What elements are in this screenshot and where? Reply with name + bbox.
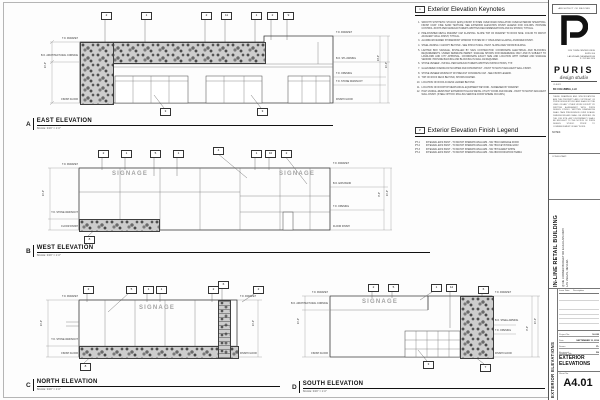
finish-text: INTEGRAL EIFS PAINT - TO MATCH SHERWIN W… xyxy=(426,145,546,147)
project-title: IN-LINE RETAIL BUILDING xyxy=(553,202,559,287)
keynote-item: 2. PRE-FINISHED METAL PARAPET CAP FLASHI… xyxy=(415,33,546,39)
elevation-letter: B xyxy=(26,248,31,255)
finish-legend-item: PT-4 INTEGRAL EIFS PAINT - TO MATCH SHER… xyxy=(415,152,546,154)
project-address-line1: @ NE CORNER BUDGET RD & HUALAPAI WAY xyxy=(562,202,565,287)
elevation-title-text: WEST ELEVATION xyxy=(37,245,430,253)
keynote-item: 12. HIGH VANDAL-RESISTANT EXTERIOR HOLLO… xyxy=(415,91,546,97)
keynote-item: 3. ALUMINUM FRAMED STOREFRONT WINDOW SYS… xyxy=(415,40,546,43)
finish-legend-item: PT-2 INTEGRAL EIFS PAINT - TO MATCH SHER… xyxy=(415,145,546,147)
sheet-side-title: EXTERIOR ELEVATIONS xyxy=(550,300,555,398)
finish-text: INTEGRAL EIFS PAINT - TO MATCH SHERWIN W… xyxy=(426,149,546,151)
elevation-title: D SOUTH ELEVATION SCALE: 3/16" = 1'-0" xyxy=(292,381,545,393)
elevation-title-text: NORTH ELEVATION xyxy=(37,379,280,387)
finish-text: INTEGRAL EIFS PAINT - TO MATCH SHERWIN W… xyxy=(426,142,546,144)
keynote-item: 10. LOCATION OF ROOF ACCESS LADDER BEYON… xyxy=(415,82,546,85)
keynote-item: 7. GALVANIZED OVERFLOW SCUPPER AND DOWNS… xyxy=(415,68,546,71)
keynote-number: 1. xyxy=(415,22,420,31)
keynote-text: PRE-FINISHED METAL PARAPET CAP FLASHING.… xyxy=(422,33,547,39)
keynotes-title: Exterior Elevation Keynotes xyxy=(428,6,505,13)
client-label: CLIENT: xyxy=(553,84,561,86)
architect-address: 1120 TOWN CENTER DRIVESUITE 200LAS VEGAS… xyxy=(553,50,595,61)
elevation-letter: A xyxy=(26,121,31,128)
design-studio-label: design studio xyxy=(551,75,597,82)
keynote-item: 1. SMOOTH SYNTHETIC STUCCO (EIFS) FINISH… xyxy=(415,22,546,31)
elevation-scale: SCALE: 3/16" = 1'-0" xyxy=(303,390,545,393)
keynote-number: 11. xyxy=(415,87,420,90)
keynote-text: SMOOTH SYNTHETIC STUCCO (EIFS) FINISH SY… xyxy=(422,22,547,31)
keynote-item: 8. STONE VENEER WAINSCOT W/ PRECAST CONC… xyxy=(415,73,546,76)
finish-code: PT-1 xyxy=(415,142,424,144)
drawing-sheet: SIGNAGESIGNAGESIGNAGESIGNAGE 21211129332… xyxy=(0,0,600,400)
keynote-text: LOCATION OF ROOF ACCESS LADDER BEYOND. xyxy=(422,82,547,85)
elevation-title: A EAST ELEVATION SCALE: 3/16" = 1'-0" xyxy=(26,118,333,130)
finish-legend-item: PT-1 INTEGRAL EIFS PAINT - TO MATCH SHER… xyxy=(415,142,546,144)
keynote-text: LOCATION OF ROOFTOP MECHANICAL EQUIPMENT… xyxy=(422,87,547,90)
keynote-text: STONE VENEER - INSTALL PER MANUFACTURER'… xyxy=(422,63,547,66)
keynote-text: LIGHTED BOX SIGNAGE, INSTALLED BY SIGN C… xyxy=(422,50,547,62)
puris-logo-icon xyxy=(560,15,588,47)
project-address-line2: LAS VEGAS, NEVADA xyxy=(566,202,569,287)
keynote-item: 9. TOP OF ROOF DECK BEYOND, SHOWN DASHED… xyxy=(415,77,546,80)
field-value: SEPTEMBER 13, 2016 xyxy=(576,340,599,342)
elevation-title-text: EAST ELEVATION xyxy=(37,118,333,126)
finish-tag-icon: P xyxy=(415,127,425,134)
keynote-item: 11. LOCATION OF ROOFTOP MECHANICAL EQUIP… xyxy=(415,87,546,90)
keynote-number: 2. xyxy=(415,33,420,39)
keynote-tag-icon: 1 xyxy=(415,6,425,13)
keynote-text: HIGH VANDAL-RESISTANT EXTERIOR HOLLOW ME… xyxy=(422,91,547,97)
finish-text: INTEGRAL EIFS PAINT - TO MATCH SHERWIN W… xyxy=(426,152,546,154)
finish-code: PT-4 xyxy=(415,152,424,154)
elevation-title: C NORTH ELEVATION SCALE: 3/16" = 1'-0" xyxy=(26,379,280,391)
elevation-scale: SCALE: 3/16" = 1'-0" xyxy=(37,388,280,391)
finish-legend-title: Exterior Elevation Finish Legend xyxy=(428,127,519,134)
puris-wordmark: PURIS xyxy=(551,65,597,75)
keynote-number: 6. xyxy=(415,63,420,66)
finish-code: PT-3 xyxy=(415,149,424,151)
drawing-title-value: EXTERIOR ELEVATIONS xyxy=(559,356,597,368)
finish-code: PT-2 xyxy=(415,145,424,147)
keynote-item: 5. LIGHTED BOX SIGNAGE, INSTALLED BY SIG… xyxy=(415,50,546,62)
keynote-item: 4. STEEL AWNING / CANOPY BEYOND - SEE ST… xyxy=(415,45,546,48)
title-block: ARCHITECT OF RECORD 1120 TOWN CENTER DRI… xyxy=(548,0,600,400)
finish-legend-item: PT-3 INTEGRAL EIFS PAINT - TO MATCH SHER… xyxy=(415,149,546,151)
revision-table-rows xyxy=(559,296,599,330)
description-column-label: Description xyxy=(573,290,584,292)
address-line: P: 702.360.1120 xyxy=(553,58,595,61)
field-value: PL xyxy=(596,346,599,348)
copyright-paragraph: THESE DRAWINGS AND SPECIFICATIONS ARE TH… xyxy=(553,96,595,128)
revision-table-header: Issue Date Description xyxy=(559,290,599,294)
field-label: Drawn xyxy=(559,346,565,348)
elevation-scale: SCALE: 3/16" = 1'-0" xyxy=(37,127,333,130)
keynote-number: 12. xyxy=(415,91,420,97)
finish-legend-list: PT-1 INTEGRAL EIFS PAINT - TO MATCH SHER… xyxy=(415,142,546,156)
keynotes-list: 1. SMOOTH SYNTHETIC STUCCO (EIFS) FINISH… xyxy=(415,22,546,99)
field-label: Date xyxy=(559,340,564,342)
keynote-number: 3. xyxy=(415,40,420,43)
field-label: Project No. xyxy=(559,334,570,336)
issue-date-column-label: Issue Date xyxy=(559,290,573,292)
keynote-text: GALVANIZED OVERFLOW SCUPPER AND DOWNSPOU… xyxy=(422,68,547,71)
keynote-number: 7. xyxy=(415,68,420,71)
keynote-item: 6. STONE VENEER - INSTALL PER MANUFACTUR… xyxy=(415,63,546,66)
field-value: DS xyxy=(596,352,599,354)
keynote-number: 10. xyxy=(415,82,420,85)
elevation-letter: D xyxy=(292,384,297,391)
elevation-title-text: SOUTH ELEVATION xyxy=(303,381,545,389)
notes-label: NOTES: xyxy=(552,131,561,134)
project-title-block: IN-LINE RETAIL BUILDING @ NE CORNER BUDG… xyxy=(553,202,569,287)
keynote-text: STEEL AWNING / CANOPY BEYOND - SEE STRUC… xyxy=(422,45,547,48)
finish-legend-header: P Exterior Elevation Finish Legend xyxy=(415,127,546,137)
keynote-text: TOP OF ROOF DECK BEYOND, SHOWN DASHED. xyxy=(422,77,547,80)
sheet-number: A4.01 xyxy=(558,377,598,389)
field-value: 16-030 xyxy=(592,334,599,336)
elevation-title: B WEST ELEVATION SCALE: 3/16" = 1'-0" xyxy=(26,245,430,257)
keynote-number: 5. xyxy=(415,50,420,62)
sheet-number-label: Sheet No. xyxy=(559,373,569,375)
consultant-label: CONSULTANT: xyxy=(552,156,567,158)
keynote-number: 9. xyxy=(415,77,420,80)
keynote-text: ALUMINUM FRAMED STOREFRONT WINDOW SYSTEM… xyxy=(422,40,547,43)
keynote-number: 8. xyxy=(415,73,420,76)
client-name: BC COLUMBIA, LLC xyxy=(553,88,577,91)
keynotes-header: 1 Exterior Elevation Keynotes xyxy=(415,6,546,16)
architect-of-record-label: ARCHITECT OF RECORD xyxy=(552,4,597,14)
keynote-text: STONE VENEER WAINSCOT W/ PRECAST CONCRET… xyxy=(422,73,547,76)
keynote-number: 4. xyxy=(415,45,420,48)
elevation-letter: C xyxy=(26,382,31,389)
elevation-scale: SCALE: 3/16" = 1'-0" xyxy=(37,254,430,257)
title-block-strip-divider xyxy=(557,288,558,400)
